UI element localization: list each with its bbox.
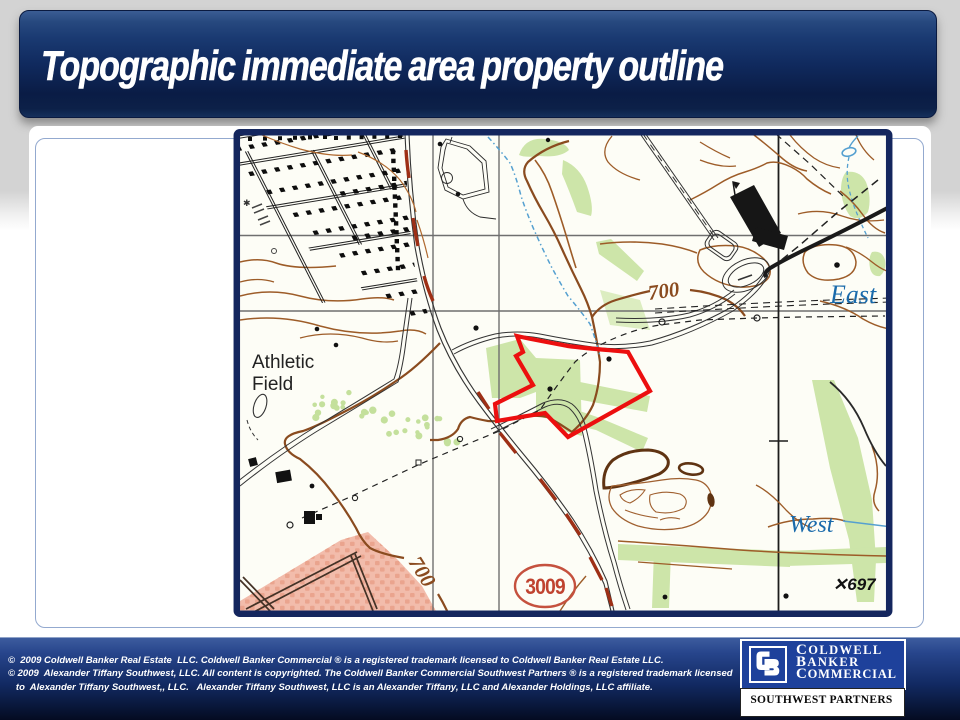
svg-text:Athletic: Athletic <box>252 352 314 373</box>
svg-text:✕697: ✕697 <box>833 575 877 594</box>
svg-text:East: East <box>829 280 877 309</box>
svg-text:3009: 3009 <box>525 575 565 599</box>
svg-text:Field: Field <box>252 374 293 395</box>
svg-text:700: 700 <box>646 277 681 305</box>
svg-text:West: West <box>789 512 835 538</box>
svg-text:✱: ✱ <box>243 198 251 208</box>
